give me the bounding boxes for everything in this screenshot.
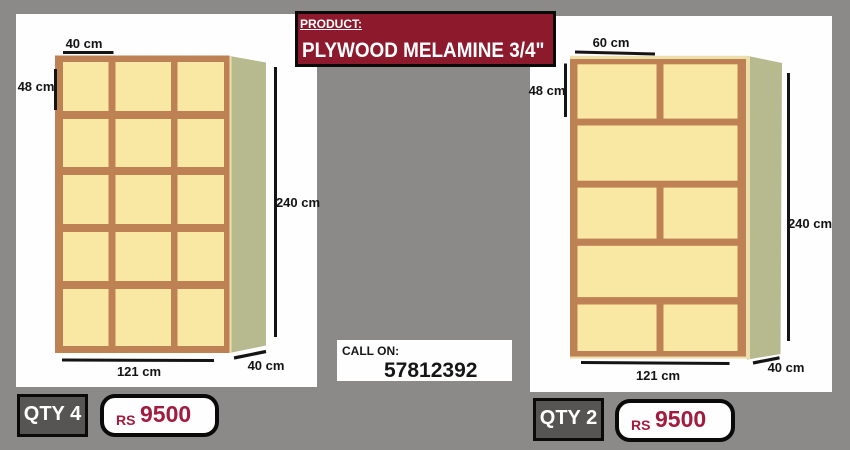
svg-text:40 cm: 40 cm [248, 358, 285, 373]
svg-text:48 cm: 48 cm [529, 83, 566, 98]
svg-text:48 cm: 48 cm [18, 79, 55, 94]
svg-text:40 cm: 40 cm [768, 360, 805, 375]
svg-text:121 cm: 121 cm [117, 364, 161, 379]
svg-text:60 cm: 60 cm [593, 35, 630, 50]
svg-text:40 cm: 40 cm [66, 36, 103, 51]
svg-text:121 cm: 121 cm [636, 368, 680, 383]
svg-text:240 cm: 240 cm [276, 195, 320, 210]
svg-text:240 cm: 240 cm [788, 216, 832, 231]
